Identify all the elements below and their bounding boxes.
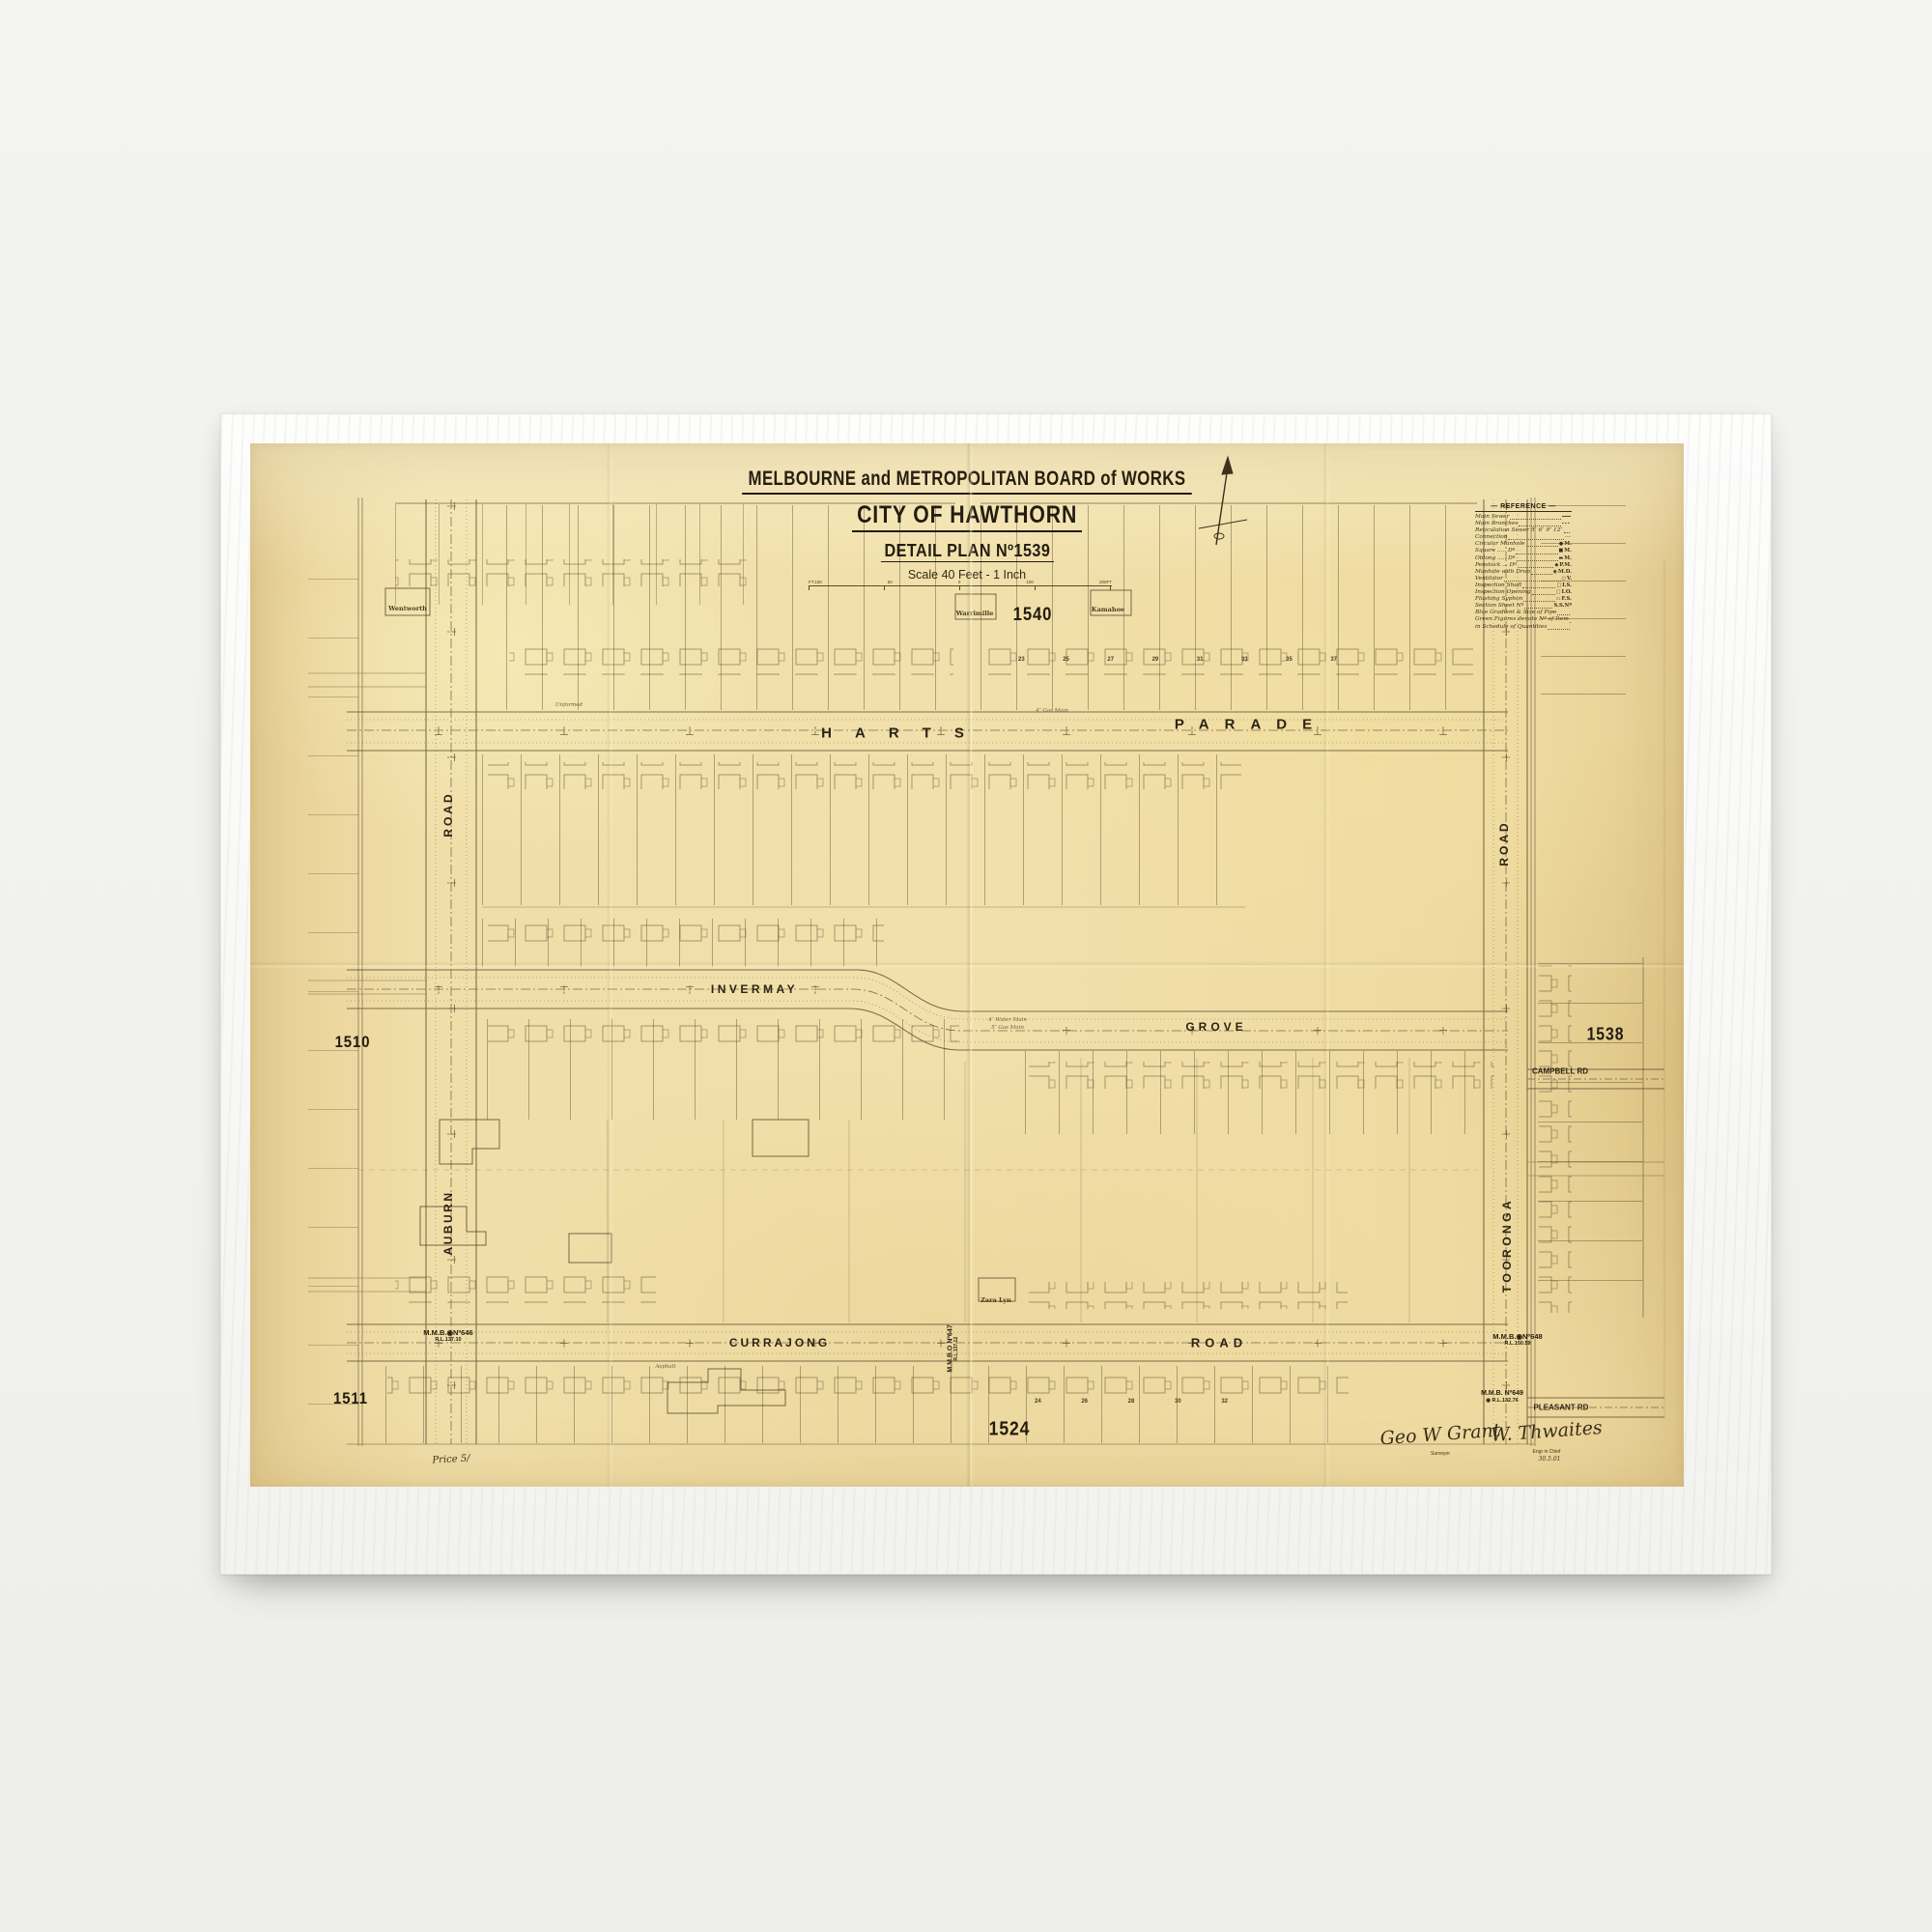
lot-numbers-bottom: 2426283032 — [1035, 1399, 1228, 1405]
lot-number: 31 — [1197, 657, 1204, 663]
picture-frame: MELBOURNE and METROPOLITAN BOARD of WORK… — [220, 413, 1772, 1575]
scale-bar-labels: FT.100500100200FT — [809, 580, 1112, 584]
legend-row: Main Sewer ━━━ — [1475, 514, 1572, 521]
scale-tick-label: 0 — [958, 580, 961, 584]
surveyor-title: Surveyor — [1431, 1451, 1450, 1457]
benchmark-648: M.M.B.◉Nº648 R.L.150.59 — [1492, 1333, 1542, 1347]
surface-note: Unformed — [555, 702, 582, 708]
street-label-tooronga: TOORONGA — [1500, 1198, 1514, 1293]
scale-tick-label: FT.100 — [809, 580, 822, 584]
scale-tick-label: 200FT — [1099, 580, 1112, 584]
scale-tick-label: 100 — [1026, 580, 1034, 584]
legend-row: Green Figures denote Nº of Item — [1475, 616, 1572, 623]
street-label-currajong-road: ROAD — [1191, 1336, 1247, 1350]
wall-background: MELBOURNE and METROPOLITAN BOARD of WORK… — [0, 0, 1932, 1932]
lot-number: 27 — [1107, 657, 1114, 663]
utility-note: 4″ Water Main — [988, 1017, 1027, 1023]
street-label-grove: GROVE — [1185, 1020, 1246, 1034]
legend-row: Manhole with Drop ◉ M.D. — [1475, 569, 1572, 576]
house-name: Kamahoe — [1092, 606, 1124, 613]
title-block: MELBOURNE and METROPOLITAN BOARD of WORK… — [686, 469, 1248, 582]
lot-number: 29 — [1152, 657, 1159, 663]
street-label-campbell-rd: CAMPBELL RD — [1532, 1067, 1588, 1076]
street-label-tooronga-road: ROAD — [1497, 820, 1511, 866]
street-label-pleasant-rd: PLEASANT RD — [1534, 1404, 1589, 1412]
lot-number: 26 — [1081, 1399, 1088, 1405]
utility-note: 5″ Gas Main — [991, 1025, 1024, 1031]
adjoining-plan-right: 1538 — [1587, 1025, 1625, 1045]
scale-bar-line — [809, 585, 1112, 590]
utility-note: 4″ Gas Main — [1036, 708, 1068, 714]
legend-row: Ventilator ○ V. — [1475, 576, 1572, 582]
allotment-ticks — [333, 505, 1590, 1409]
adjoining-plan-left-lower: 1511 — [333, 1389, 368, 1408]
house-name: Warrimille — [956, 610, 994, 617]
benchmark-649: M.M.B. Nº649 ◉ R.L.132.76 — [1481, 1390, 1523, 1404]
legend-rows: Main Sewer ━━━ Main Branches ╸╸╸ Reticul… — [1475, 514, 1572, 631]
legend-row: Inspection Opening ▢ I.O. — [1475, 589, 1572, 596]
benchmark-646: M.M.B.◉Nº646 R.L.137.10 — [423, 1329, 472, 1343]
board-title: MELBOURNE and METROPOLITAN BOARD of WORK… — [742, 469, 1192, 495]
detail-plan-number: DETAIL PLAN Nº1539 — [880, 542, 1053, 562]
scale-tick-label: 50 — [888, 580, 893, 584]
engineer-title: Engr in Chief — [1533, 1449, 1561, 1455]
legend-row: Oblong ..... Dº ▬ M. — [1475, 555, 1572, 562]
reference-legend: — REFERENCE — Main Sewer ━━━ Main Branch… — [1475, 503, 1572, 631]
legend-row: Penstock ... Dº ◆ P.M. — [1475, 562, 1572, 569]
lot-numbers-top: 2325272931333537 — [1018, 657, 1337, 663]
adjoining-plan-left-upper: 1510 — [335, 1033, 371, 1052]
surface-note: Asphalt — [655, 1364, 675, 1370]
street-label-invermay: INVERMAY — [711, 982, 798, 996]
legend-row: in Schedule of Quantities — [1475, 624, 1572, 631]
legend-row: Main Branches ╸╸╸ — [1475, 521, 1572, 527]
street-label-currajong: CURRAJONG — [729, 1336, 830, 1350]
legend-row: Inspection Shaft □ I.S. — [1475, 582, 1572, 589]
legend-row: Connection ┄┄ — [1475, 534, 1572, 541]
lot-number: 37 — [1330, 657, 1337, 663]
house-name: Wentworth — [388, 605, 427, 612]
map-paper: MELBOURNE and METROPOLITAN BOARD of WORK… — [250, 443, 1684, 1487]
adjoining-plan-bottom: 1524 — [989, 1419, 1031, 1441]
lot-number: 28 — [1128, 1399, 1135, 1405]
house-name: Zara Lyn — [980, 1296, 1011, 1304]
city-title: CITY OF HAWTHORN — [852, 503, 1082, 532]
adjoining-plan-top: 1540 — [1013, 605, 1053, 626]
lot-number: 32 — [1221, 1399, 1228, 1405]
lot-number: 30 — [1175, 1399, 1181, 1405]
legend-row: Reticulation Sewer 5″ 6″ 9″ 12″ — [1475, 527, 1572, 534]
lot-number: 35 — [1286, 657, 1293, 663]
legend-row: Section Sheet Nº S.S.Nº — [1475, 603, 1572, 610]
lot-number: 33 — [1241, 657, 1248, 663]
lot-number: 24 — [1035, 1399, 1041, 1405]
legend-row: Square ..... Dº ■ M. — [1475, 548, 1572, 554]
price-note: Price 5/ — [432, 1453, 470, 1465]
lot-number: 23 — [1018, 657, 1025, 663]
signature-date: 30.5.01 — [1539, 1456, 1561, 1463]
building-strips — [387, 559, 1572, 1396]
legend-title: — REFERENCE — — [1475, 503, 1572, 512]
lot-number: 25 — [1063, 657, 1069, 663]
street-label-auburn-road: ROAD — [441, 791, 455, 837]
benchmark-647: M.M.B.O Nº647 R.L.137.12 — [947, 1324, 959, 1372]
scale-bar: FT.100500100200FT — [809, 580, 1112, 590]
street-label-harts: HARTS — [821, 725, 987, 742]
street-label-auburn: AUBURN — [441, 1191, 455, 1256]
street-label-parade: PARADE — [1175, 717, 1327, 733]
